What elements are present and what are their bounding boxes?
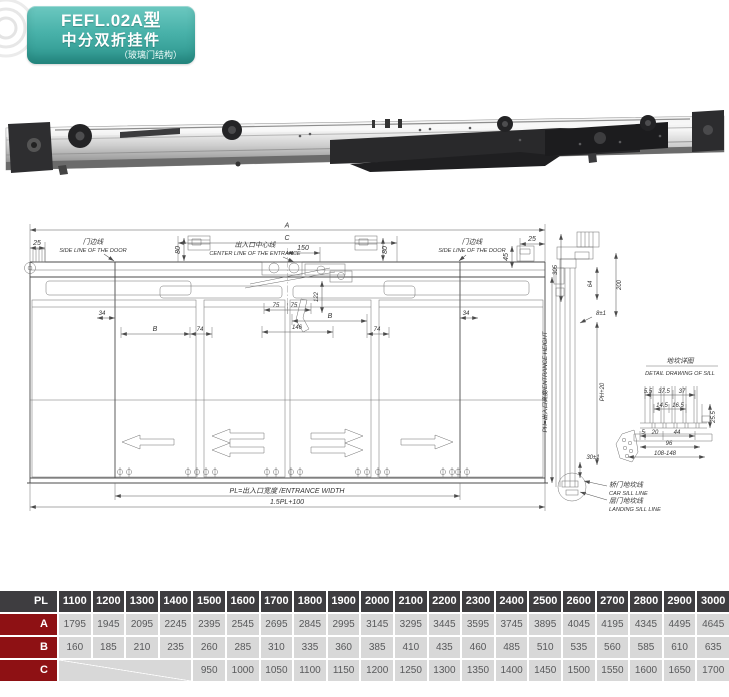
table-value-cell: 485 (496, 637, 528, 658)
table-value-cell: 335 (294, 637, 326, 658)
table-value-cell: 410 (395, 637, 427, 658)
sill-title-cn: 地坎详图 (666, 357, 694, 365)
dim-25-left-label: 25 (32, 240, 41, 247)
table-header-cell: 1200 (93, 591, 125, 612)
table-value-cell: 3595 (462, 614, 494, 635)
table-header-cell: 2400 (496, 591, 528, 612)
table-value-cell: 185 (93, 637, 125, 658)
technical-drawing: A C 150 80 80 25 25 45 门边线 SIDE LINE OF … (0, 192, 729, 540)
table-header-cell: 2000 (361, 591, 393, 612)
table-header-cell: 1300 (126, 591, 158, 612)
dim-64-label: 64 (588, 280, 594, 287)
table-value-cell: 1100 (294, 660, 326, 681)
table-header-cell: 2900 (664, 591, 696, 612)
product-structure: （玻璃门结构） (27, 50, 195, 61)
sill-extension-lines (640, 390, 695, 440)
door-side-line-left-cn: 门边线 (83, 238, 105, 246)
table-value-cell: 310 (261, 637, 293, 658)
table-value-cell: 435 (429, 637, 461, 658)
belt-clamp-mechanism (245, 262, 352, 332)
table-value-cell: 1700 (697, 660, 729, 681)
sill-detail-circle (558, 473, 586, 501)
table-value-cell: 4495 (664, 614, 696, 635)
dim-74-left-label: 74 (197, 327, 204, 333)
table-value-cell: 2245 (160, 614, 192, 635)
car-sill-line-en: CAR SILL LINE (609, 491, 648, 497)
table-value-cell: 3145 (361, 614, 393, 635)
table-value-cell: 210 (126, 637, 158, 658)
product-badge: FEFL.02A型 中分双折挂件 （玻璃门结构） (27, 6, 195, 64)
table-value-cell: 260 (193, 637, 225, 658)
table-header-cell: 1800 (294, 591, 326, 612)
table-value-cell: 510 (529, 637, 561, 658)
sill-dim-14-5: 14.5 (656, 403, 668, 409)
front-view: A C 150 80 80 25 25 45 门边线 SIDE LINE OF … (25, 223, 549, 512)
side-dimension-lines (552, 234, 616, 500)
table-value-cell: 3295 (395, 614, 427, 635)
table-row-label: B (0, 637, 57, 658)
table-value-cell: 360 (328, 637, 360, 658)
dim-a-label: A (284, 223, 290, 230)
table-value-cell: 1200 (361, 660, 393, 681)
table-value-cell: 1250 (395, 660, 427, 681)
table-value-cell: 4645 (697, 614, 729, 635)
entrance-height-label: PH=出入口高度/ENTRANCE HEIGHT (541, 330, 549, 432)
dim-25-right-label: 25 (527, 236, 536, 243)
table-header-cell: 1400 (160, 591, 192, 612)
dim-74-right-label: 74 (374, 327, 381, 333)
table-value-cell: 1300 (429, 660, 461, 681)
table-header-cell: 2100 (395, 591, 427, 612)
table-value-cell: 560 (597, 637, 629, 658)
dim-45-label: 45 (503, 253, 510, 261)
table-value-cell: 535 (563, 637, 595, 658)
sill-dim-25-5: 25.5 (711, 411, 717, 424)
dim-200-label: 200 (617, 279, 623, 291)
table-value-cell: 1795 (59, 614, 91, 635)
door-side-line-right-cn: 门边线 (462, 238, 484, 246)
table-value-cell: 2695 (261, 614, 293, 635)
table-value-cell: 1150 (328, 660, 360, 681)
dim-75-left-label: 75 (273, 303, 280, 309)
table-row-label: C (0, 660, 57, 681)
table-header-cell: 3000 (697, 591, 729, 612)
table-value-cell: 635 (697, 637, 729, 658)
front-dimension-lines (30, 230, 545, 507)
table-value-cell: 385 (361, 637, 393, 658)
entrance-width-label: PL=出入口宽度 /ENTRANCE WIDTH (230, 487, 346, 495)
sill-dim-range: 108-148 (654, 451, 677, 457)
table-value-cell: 1450 (529, 660, 561, 681)
table-value-cell: 2095 (126, 614, 158, 635)
product-model: FEFL.02A型 (27, 10, 195, 31)
sill-dim-96: 96 (666, 441, 673, 447)
sill-dim-37-5: 37.5 (658, 389, 670, 395)
table-header-cell: 2200 (429, 591, 461, 612)
table-value-cell: 160 (59, 637, 91, 658)
dim-146-label: 146 (292, 325, 303, 331)
table-header-label: PL (0, 591, 57, 612)
track-mechanism-photo (0, 100, 729, 178)
sill-dim-5: 5 (641, 430, 645, 436)
door-side-line-left-en: SIDE LINE OF THE DOOR (59, 248, 126, 254)
dimension-table: PL11001200130014001500160017001800190020… (0, 591, 729, 681)
sill-dim-5-5: 5.5 (644, 389, 653, 395)
sill-dim-20: 20 (651, 430, 659, 436)
door-panels (32, 300, 543, 477)
table-value-cell: 2395 (193, 614, 225, 635)
landing-sill-line-cn: 层门地坎线 (609, 497, 644, 505)
guide-shoes (117, 467, 469, 477)
door-direction-arrows (122, 429, 453, 457)
dim-30-label: 30±1 (586, 455, 599, 461)
dim-34-right-label: 34 (463, 311, 470, 317)
sill-title-en: DETAIL DRAWING OF SILL (645, 371, 715, 377)
car-sill-line-cn: 轿门地坎线 (609, 481, 644, 489)
table-value-cell: 235 (160, 637, 192, 658)
table-value-cell: 585 (630, 637, 662, 658)
table-value-cell: 460 (462, 637, 494, 658)
table-header-cell: 1600 (227, 591, 259, 612)
table-value-cell: 1550 (597, 660, 629, 681)
table-value-cell: 1500 (563, 660, 595, 681)
table-value-cell: 4195 (597, 614, 629, 635)
dim-34-left-label: 34 (99, 311, 106, 317)
table-value-cell: 285 (227, 637, 259, 658)
table-value-cell: 1000 (227, 660, 259, 681)
table-value-cell: 610 (664, 637, 696, 658)
dim-b-left-label: B (153, 326, 158, 333)
table-header-cell: 1100 (59, 591, 91, 612)
landing-sill-line-en: LANDING SILL LINE (609, 507, 661, 513)
sill-detail: 地坎详图 DETAIL DRAWING OF SILL 5.5 37.5 (616, 357, 718, 462)
dim-305-label: 305 (553, 264, 559, 275)
table-header-cell: 2800 (630, 591, 662, 612)
sill-dim-44: 44 (674, 430, 681, 436)
center-line-cn: 出入口中心线 (235, 241, 277, 249)
table-value-cell: 1600 (630, 660, 662, 681)
table-header-cell: 2300 (462, 591, 494, 612)
table-header-cell: 2500 (529, 591, 561, 612)
table-value-cell: 4345 (630, 614, 662, 635)
table-value-cell: 1650 (664, 660, 696, 681)
table-value-cell: 2845 (294, 614, 326, 635)
table-header-cell: 1500 (193, 591, 225, 612)
center-line-en: CENTER LINE OF THE ENTRANCE (209, 251, 301, 257)
table-header-cell: 1900 (328, 591, 360, 612)
table-value-cell: 4045 (563, 614, 595, 635)
table-value-cell: 950 (193, 660, 225, 681)
table-value-cell: 1050 (261, 660, 293, 681)
dim-75-right-label: 75 (291, 303, 298, 309)
table-header-cell: 2600 (563, 591, 595, 612)
table-value-cell: 1400 (496, 660, 528, 681)
overall-width-label: 1.5PL+100 (270, 499, 304, 506)
table-value-cell: 2995 (328, 614, 360, 635)
dim-80-right-label: 80 (382, 246, 389, 254)
table-value-cell: 2545 (227, 614, 259, 635)
table-empty-cell (59, 660, 191, 681)
table-value-cell: 1945 (93, 614, 125, 635)
dim-ph20-label: PH+20 (600, 382, 606, 401)
dim-c-label: C (284, 235, 290, 242)
side-view: 305 200 64 8±1 PH+20 30±1 PH=出入口高度/ENTRA… (541, 232, 661, 513)
table-row-label: A (0, 614, 57, 635)
door-side-line-right-en: SIDE LINE OF THE DOOR (438, 248, 505, 254)
dim-8-label: 8±1 (596, 311, 606, 317)
sill-dim-16-5: 16.5 (672, 403, 684, 409)
table-header-cell: 1700 (261, 591, 293, 612)
dim-80-left-label: 80 (175, 246, 182, 254)
dim-b-right-label: B (328, 313, 333, 320)
table-value-cell: 3445 (429, 614, 461, 635)
sill-dim-37: 37 (679, 389, 686, 395)
table-value-cell: 3895 (529, 614, 561, 635)
table-value-cell: 3745 (496, 614, 528, 635)
product-name: 中分双折挂件 (27, 31, 195, 50)
table-value-cell: 1350 (462, 660, 494, 681)
table-header-cell: 2700 (597, 591, 629, 612)
dim-122-label: 122 (314, 291, 320, 302)
